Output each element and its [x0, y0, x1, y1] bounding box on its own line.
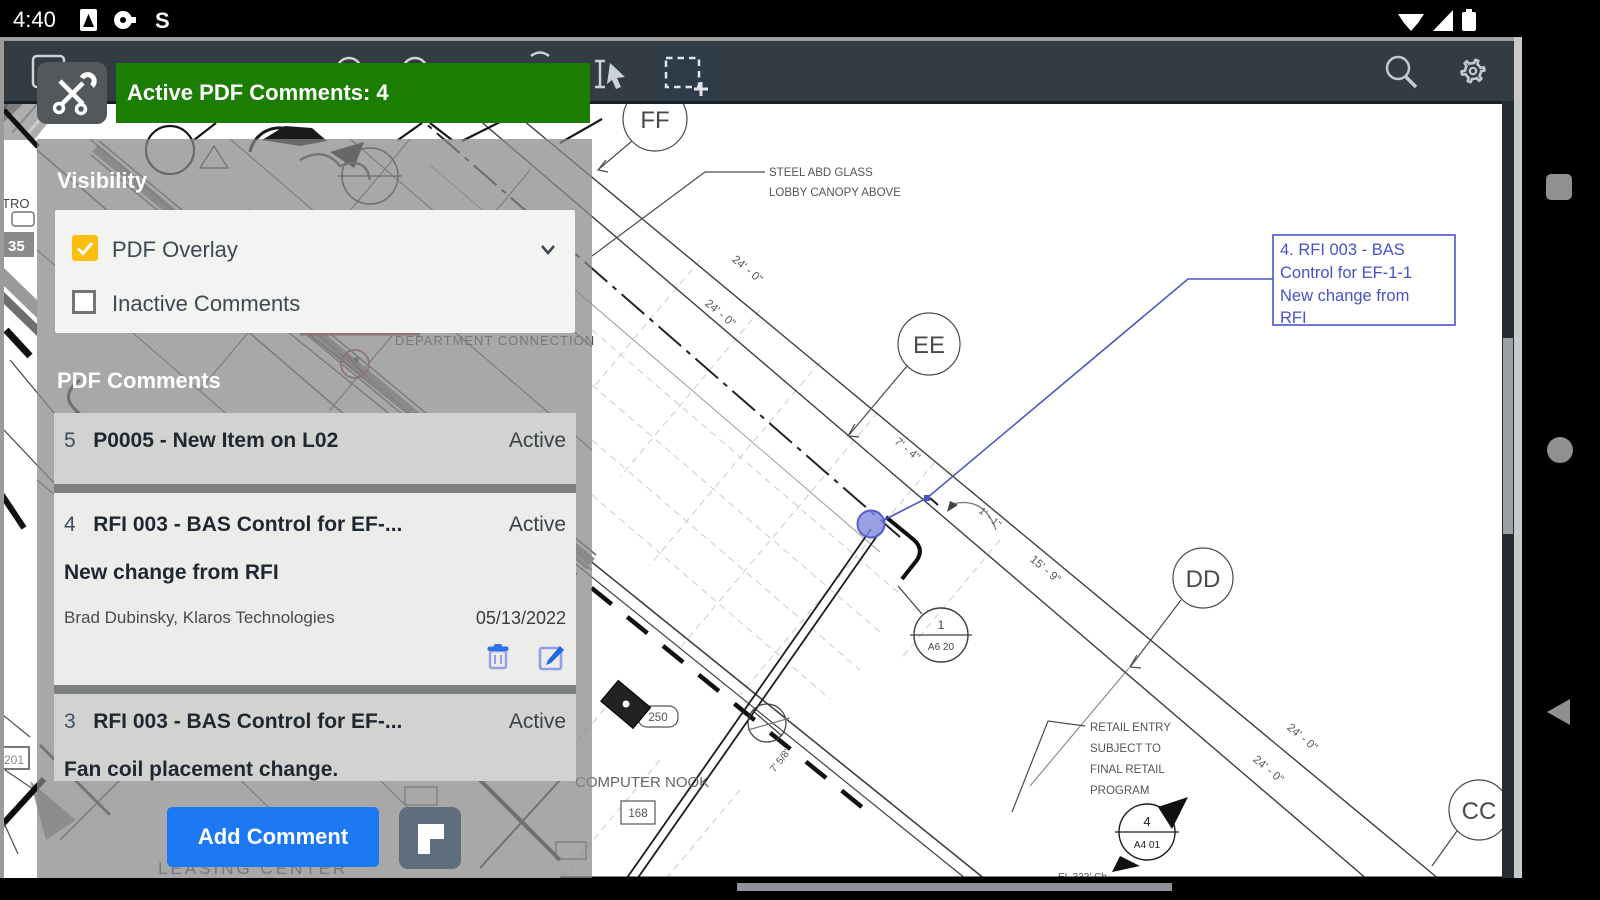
svg-text:35: 35 [8, 238, 25, 255]
svg-text:STEEL ABD GLASS: STEEL ABD GLASS [769, 167, 873, 179]
svg-text:EE: EE [913, 332, 945, 359]
svg-text:A6 20: A6 20 [928, 642, 955, 653]
svg-text:FINAL RETAIL: FINAL RETAIL [1090, 764, 1165, 776]
svg-text:24' - 0": 24' - 0" [1284, 722, 1319, 754]
svg-text:RFI: RFI [1280, 309, 1307, 327]
svg-text:250: 250 [648, 712, 667, 724]
svg-text:New change from: New change from [1280, 287, 1409, 305]
svg-text:S: S [155, 8, 170, 33]
svg-text:168: 168 [628, 808, 647, 820]
svg-text:4. RFI 003 - BAS: 4. RFI 003 - BAS [1280, 241, 1405, 259]
svg-text:TRO: TRO [4, 196, 29, 211]
svg-text:15' - 9": 15' - 9" [1027, 554, 1062, 586]
svg-text:24' - 0": 24' - 0" [1250, 754, 1285, 786]
svg-text:LOBBY CANOPY ABOVE: LOBBY CANOPY ABOVE [769, 187, 901, 199]
svg-text:A4 01: A4 01 [1134, 840, 1161, 851]
svg-text:Control for EF-1-1: Control for EF-1-1 [1280, 264, 1412, 282]
svg-text:PROGRAM: PROGRAM [1090, 785, 1149, 797]
svg-text:24' - 0": 24' - 0" [729, 254, 764, 286]
svg-text:CC: CC [1462, 798, 1497, 825]
svg-text:4: 4 [1143, 814, 1150, 829]
svg-text:SUBJECT TO: SUBJECT TO [1090, 743, 1161, 755]
svg-text:COMPUTER NOOK: COMPUTER NOOK [575, 774, 709, 791]
svg-text:201: 201 [4, 753, 24, 767]
svg-text:7' 5/8": 7' 5/8" [768, 746, 794, 775]
svg-text:RETAIL ENTRY: RETAIL ENTRY [1090, 722, 1171, 734]
svg-text:7' - 4": 7' - 4" [892, 436, 922, 464]
svg-text:1: 1 [938, 618, 945, 632]
svg-text:FF: FF [640, 107, 669, 134]
svg-text:1' - 1": 1' - 1" [976, 506, 1003, 531]
svg-text:DD: DD [1186, 566, 1221, 593]
